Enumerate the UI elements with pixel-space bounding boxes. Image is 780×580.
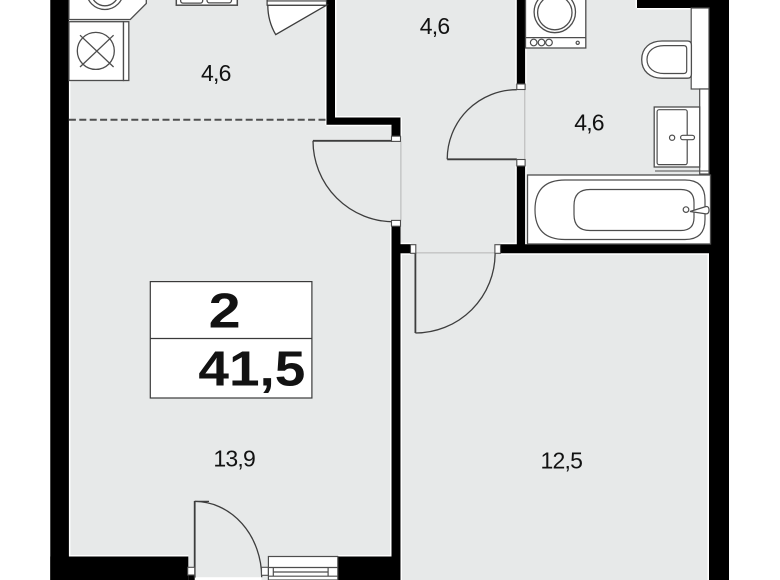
svg-text:4,6: 4,6 — [574, 109, 604, 135]
svg-text:2: 2 — [209, 285, 241, 339]
svg-text:12,5: 12,5 — [541, 448, 583, 474]
svg-text:13,9: 13,9 — [213, 445, 255, 471]
svg-text:41,5: 41,5 — [198, 343, 305, 397]
svg-text:4,6: 4,6 — [201, 60, 231, 86]
svg-text:4,6: 4,6 — [420, 13, 450, 39]
